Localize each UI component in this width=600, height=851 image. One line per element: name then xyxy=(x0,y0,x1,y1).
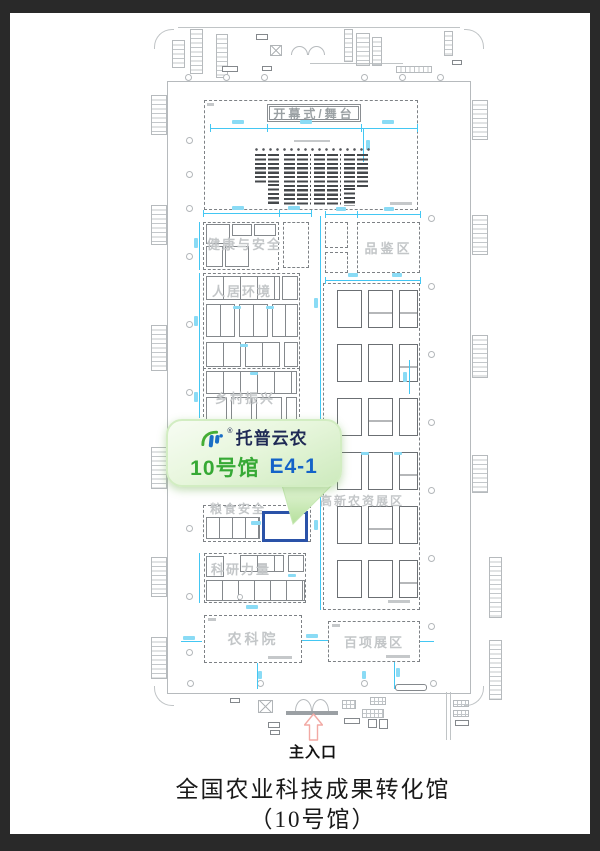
screenshot-root: 开幕式/舞台 xyxy=(0,0,600,851)
zone-research-label: 科研力量 xyxy=(211,559,271,578)
entrance-door-arc xyxy=(312,699,329,711)
registered-mark: ® xyxy=(227,428,232,435)
zone-grain-label: 粮食安全 xyxy=(210,500,266,517)
entrance-label: 主入口 xyxy=(283,741,343,762)
hall-number: 10号馆 xyxy=(190,452,259,482)
up-arrow-icon xyxy=(304,713,323,741)
booth-number: E4-1 xyxy=(270,455,318,479)
tp-logo-icon xyxy=(200,429,224,451)
round-tables-row xyxy=(253,146,373,153)
zone-rural-label: 乡村振兴 xyxy=(215,388,275,407)
callout-tail xyxy=(276,484,336,526)
seating-block xyxy=(284,154,311,206)
seating-block xyxy=(314,154,341,206)
zone-tasting-label: 品鉴区 xyxy=(364,238,412,257)
entrance-door-arc xyxy=(295,699,312,711)
zone-hundred-label: 百项展区 xyxy=(344,632,404,651)
zone-health-label: 健康与安全 xyxy=(207,234,282,253)
location-callout: ® 托普云农 10号馆 E4-1 xyxy=(166,419,342,487)
stage-label-box: 开幕式/舞台 xyxy=(267,104,361,122)
seating-block xyxy=(344,154,370,188)
brand-name: 托普云农 xyxy=(236,429,308,449)
zone-academy-label: 农科院 xyxy=(228,629,279,649)
callout-brand-row: ® 托普云农 xyxy=(200,429,307,451)
seating-block xyxy=(255,154,281,184)
booth-e8-side xyxy=(283,222,309,268)
callout-location-row: 10号馆 E4-1 xyxy=(190,452,318,482)
zone-living-label: 人居环境 xyxy=(212,281,272,300)
stage-label: 开幕式/舞台 xyxy=(273,105,354,122)
